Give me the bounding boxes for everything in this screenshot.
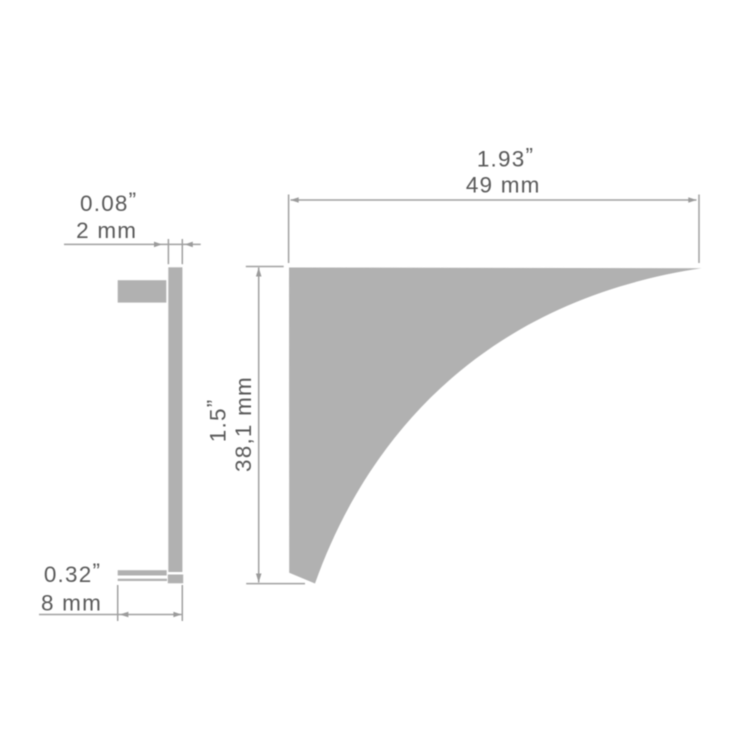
svg-text:1.93”: 1.93” [477, 144, 534, 172]
svg-text:0.32”: 0.32” [44, 559, 101, 587]
svg-text:2 mm: 2 mm [76, 218, 137, 243]
svg-text:38,1 mm: 38,1 mm [231, 376, 256, 472]
svg-text:49 mm: 49 mm [466, 172, 541, 197]
svg-text:8 mm: 8 mm [41, 591, 102, 616]
svg-text:1.5”: 1.5” [203, 399, 231, 443]
svg-text:0.08”: 0.08” [80, 188, 137, 216]
